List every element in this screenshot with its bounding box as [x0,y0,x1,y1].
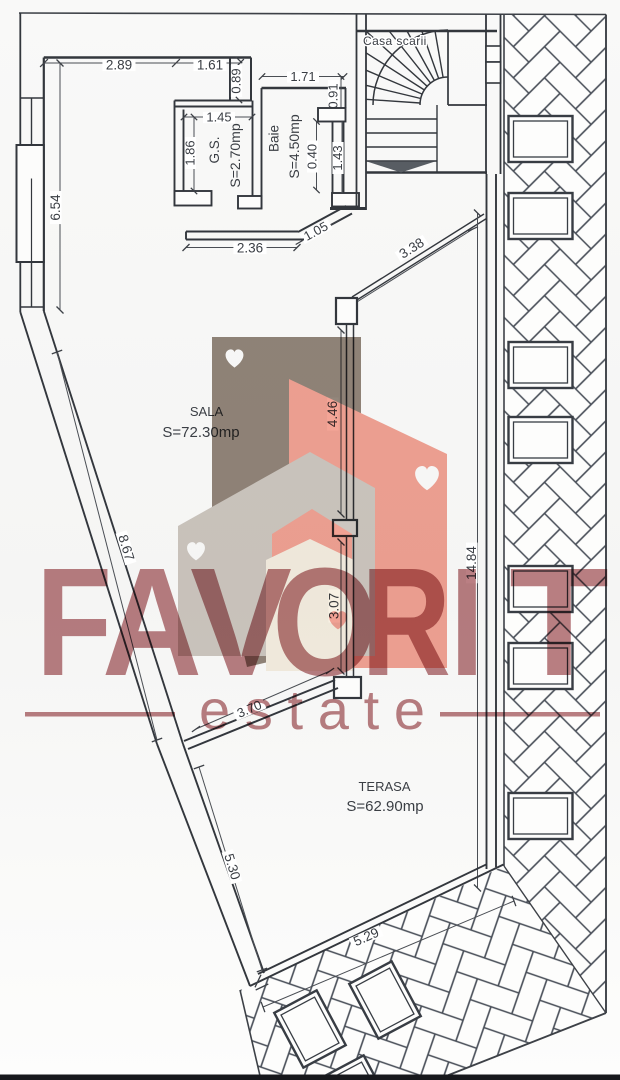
svg-text:5.30: 5.30 [221,852,243,882]
svg-text:1.71: 1.71 [290,69,315,84]
svg-text:I: I [450,536,484,708]
svg-text:2.36: 2.36 [237,241,263,256]
svg-text:G.S.: G.S. [207,136,222,163]
svg-text:A: A [102,536,202,708]
svg-text:0.40: 0.40 [305,144,320,169]
svg-text:Casa scarii: Casa scarii [363,34,427,48]
svg-text:TERASA: TERASA [358,779,410,794]
svg-text:0.89: 0.89 [229,68,244,93]
svg-text:T: T [509,536,609,708]
svg-text:0.91: 0.91 [326,83,341,108]
svg-text:S=62.90mp: S=62.90mp [346,798,423,815]
svg-text:1.86: 1.86 [183,140,198,165]
svg-text:Baie: Baie [267,125,282,152]
svg-text:1.45: 1.45 [206,110,231,125]
svg-text:S=4.50mp: S=4.50mp [286,114,302,178]
svg-text:1.61: 1.61 [197,58,223,73]
svg-text:F: F [36,536,112,708]
svg-text:S=2.70mp: S=2.70mp [227,123,243,187]
svg-text:1.43: 1.43 [330,145,345,170]
svg-text:2.89: 2.89 [106,58,132,73]
svg-text:6.54: 6.54 [48,194,63,221]
